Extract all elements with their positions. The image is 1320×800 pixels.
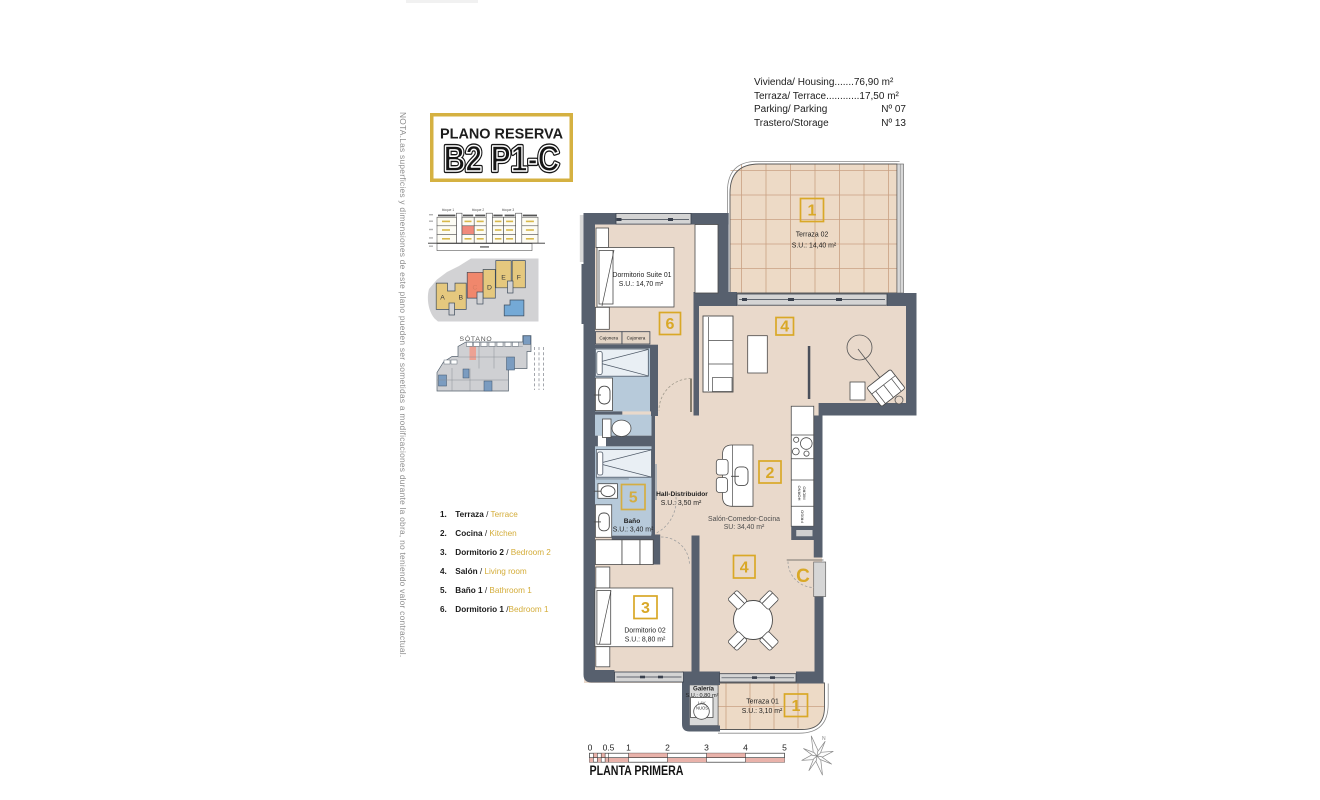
svg-text:Terraza 01: Terraza 01 (746, 699, 779, 706)
svg-text:4: 4 (780, 319, 789, 336)
svg-text:C: C (473, 285, 478, 292)
svg-text:S.U.: 3,10 m²: S.U.: 3,10 m² (742, 708, 783, 715)
svg-text:1: 1 (792, 698, 801, 715)
svg-text:1: 1 (626, 743, 631, 753)
svg-text:PLANTA PRIMERA: PLANTA PRIMERA (590, 763, 684, 778)
svg-text:0.5: 0.5 (603, 743, 615, 753)
svg-text:SU: 34,40 m²: SU: 34,40 m² (724, 524, 765, 531)
svg-text:S.U.: 14,40 m²: S.U.: 14,40 m² (792, 243, 837, 250)
svg-text:4: 4 (740, 560, 749, 577)
svg-text:S.U.: 3,40 m²: S.U.: 3,40 m² (613, 527, 654, 534)
svg-text:B2 P1-C: B2 P1-C (444, 138, 560, 179)
svg-text:Dormitorio Suite 01: Dormitorio Suite 01 (613, 272, 672, 279)
svg-text:3: 3 (704, 743, 709, 753)
svg-text:1: 1 (808, 203, 817, 220)
svg-text:MICRO: MICRO (802, 486, 807, 499)
svg-text:Galería: Galería (693, 686, 715, 693)
svg-text:B: B (459, 295, 464, 302)
svg-text:5: 5 (629, 490, 638, 507)
svg-text:A: A (440, 295, 445, 302)
svg-text:2: 2 (766, 465, 775, 482)
svg-text:FRIGO: FRIGO (800, 510, 805, 523)
svg-text:Dormitorio 02: Dormitorio 02 (624, 628, 666, 635)
svg-text:F: F (517, 275, 521, 282)
svg-text:6: 6 (666, 316, 675, 333)
svg-text:N: N (822, 736, 826, 742)
svg-text:4: 4 (743, 743, 748, 753)
svg-text:5: 5 (782, 743, 787, 753)
svg-text:S.U.: 3,50 m²: S.U.: 3,50 m² (661, 500, 702, 507)
svg-text:2: 2 (665, 743, 670, 753)
svg-text:NUOS: NUOS (696, 705, 708, 710)
svg-text:C: C (796, 566, 810, 587)
svg-text:S.U.: 8,80 m²: S.U.: 8,80 m² (625, 637, 666, 644)
svg-text:3: 3 (641, 600, 650, 617)
svg-text:D: D (487, 285, 492, 292)
svg-text:Terraza 02: Terraza 02 (796, 232, 829, 239)
svg-text:Salón-Comedor-Cocina: Salón-Comedor-Cocina (708, 516, 780, 523)
svg-text:S.U.: 14,70 m²: S.U.: 14,70 m² (619, 281, 664, 288)
svg-text:bloque 3: bloque 3 (502, 208, 514, 212)
svg-text:E: E (501, 275, 506, 282)
svg-text:bloque 1: bloque 1 (442, 208, 454, 212)
svg-text:Cajonera: Cajonera (627, 336, 646, 341)
svg-text:Cajonera: Cajonera (599, 336, 618, 341)
svg-text:S.U.: 0,80 m²: S.U.: 0,80 m² (686, 693, 719, 699)
svg-text:Hall-Distribuidor: Hall-Distribuidor (656, 491, 708, 498)
svg-text:bloque 2: bloque 2 (472, 208, 484, 212)
svg-text:0: 0 (588, 743, 593, 753)
svg-text:Baño: Baño (624, 518, 640, 525)
